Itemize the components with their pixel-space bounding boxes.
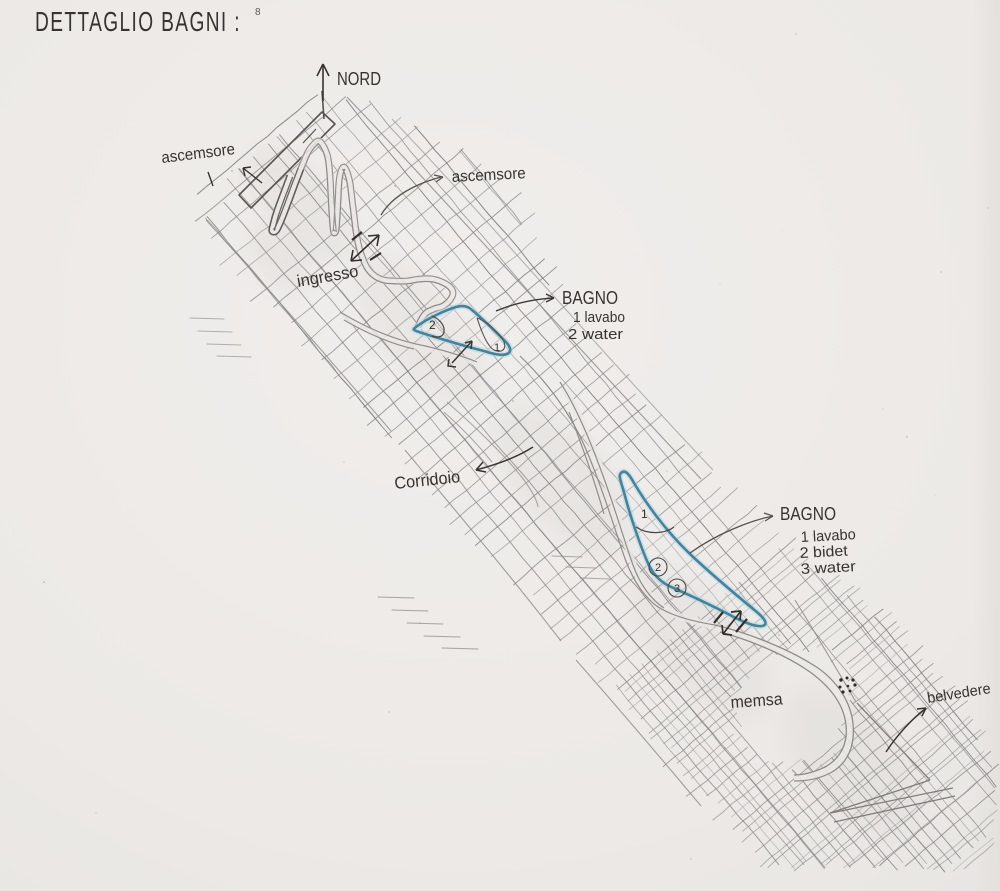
svg-text:2: 2 [429, 318, 436, 332]
svg-text:1: 1 [494, 342, 500, 354]
svg-text:3: 3 [674, 583, 680, 595]
svg-text:8: 8 [255, 7, 261, 18]
svg-text:3 water: 3 water [800, 558, 856, 578]
svg-text:1: 1 [641, 507, 648, 521]
svg-text:BAGNO: BAGNO [562, 288, 618, 308]
svg-text:NORD: NORD [337, 69, 381, 89]
svg-text:2: 2 [655, 562, 661, 574]
svg-text:DETTAGLIO BAGNI :: DETTAGLIO BAGNI : [35, 6, 241, 37]
svg-text:memsa: memsa [730, 689, 784, 712]
svg-text:1 lavabo: 1 lavabo [573, 309, 625, 326]
svg-text:2 water: 2 water [568, 326, 623, 343]
svg-text:BAGNO: BAGNO [780, 504, 836, 524]
